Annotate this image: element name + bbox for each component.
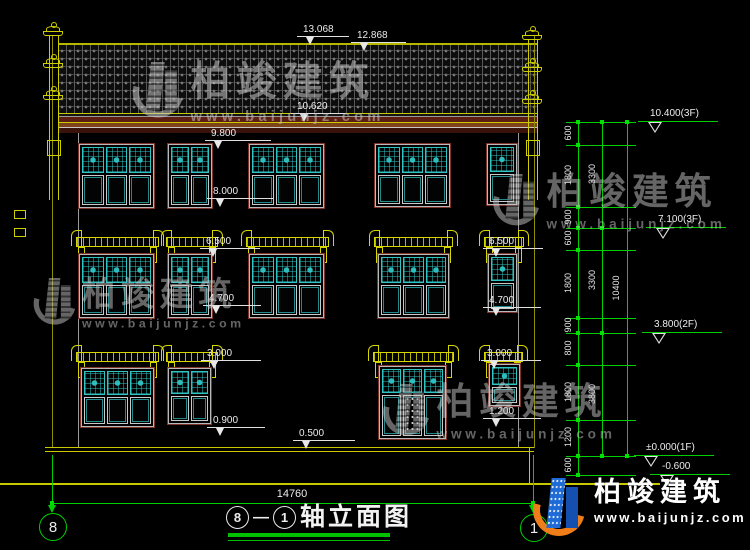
window-panes — [490, 174, 514, 202]
window-panes — [378, 175, 447, 204]
window-lattice — [171, 147, 209, 173]
elevation-symbol-icon — [656, 228, 670, 239]
lattice-window — [78, 143, 155, 209]
dim-chain-tick — [576, 120, 580, 124]
watermark-url: www.baijunjz.com — [437, 426, 616, 442]
dim-chain-tick — [625, 454, 629, 458]
title-axis-circle-left: 8 — [226, 506, 249, 529]
awning-end-right — [517, 345, 528, 361]
dim-chain-tick — [576, 248, 580, 252]
awning-bar — [374, 237, 453, 247]
dim-chain-tick — [600, 331, 604, 335]
window-pane — [381, 285, 401, 315]
lattice-cell — [171, 371, 189, 394]
window-pane — [82, 175, 104, 205]
lattice-cell — [130, 371, 151, 395]
dim-chain-line — [627, 122, 628, 456]
dim-chain-tick — [576, 418, 580, 422]
dim-chain-label: 3300 — [587, 154, 597, 194]
dim-chain-label: 1800 — [563, 155, 573, 195]
dimension-arrow-icon — [490, 361, 498, 369]
lattice-cell — [106, 147, 128, 173]
window-pane — [191, 396, 209, 421]
lattice-cell — [171, 147, 189, 173]
dim-chain-label: 3800 — [587, 374, 597, 414]
dimension-label: 0.500 — [299, 428, 324, 439]
watermark-building-icon — [61, 285, 71, 318]
wall-mark — [14, 228, 26, 237]
window-pane — [171, 285, 189, 315]
dim-chain-tick — [576, 143, 580, 147]
window-panes — [171, 175, 209, 205]
lattice-cell — [107, 371, 128, 395]
window-pane — [84, 397, 105, 424]
roof-eave-band — [58, 113, 537, 133]
dimension-label: 6.500 — [489, 236, 514, 247]
lattice-cell — [491, 257, 514, 281]
window-panes — [252, 285, 321, 315]
dimension-label: 10.620 — [297, 101, 328, 112]
window-lattice — [491, 257, 514, 281]
window-awning — [71, 345, 164, 369]
dim-chain-tick — [600, 226, 604, 230]
lattice-cell — [424, 369, 443, 393]
lattice-cell — [426, 257, 446, 283]
ground-line-upper — [45, 447, 534, 448]
lattice-cell — [425, 147, 447, 173]
brand-texts: 柏竣建筑 www.baijunjz.com — [594, 478, 746, 525]
dimension-annotation: 0.900 — [213, 415, 238, 426]
dimension-line — [297, 36, 349, 37]
window-lattice — [252, 257, 321, 283]
lattice-cell — [252, 257, 274, 283]
dimension-label: 9.800 — [211, 128, 236, 139]
dimension-arrow-icon — [214, 141, 222, 149]
dim-chain-label: 600 — [563, 113, 573, 153]
lattice-cell — [82, 257, 104, 283]
elevation-symbol-icon — [648, 122, 662, 133]
window-lattice — [82, 257, 151, 283]
dimension-annotation: 4.700 — [489, 295, 514, 306]
dimension-arrow-icon — [492, 249, 500, 257]
dim-chain-tick — [600, 120, 604, 124]
window-panes — [82, 285, 151, 315]
lattice-cell — [299, 147, 321, 173]
dimension-annotation: 3.000 — [207, 348, 232, 359]
awning-bar — [76, 352, 159, 362]
dimension-label: 4.700 — [209, 293, 234, 304]
window-pane — [191, 175, 209, 205]
elevation-marker-label: ±0.000(1F) — [646, 442, 695, 453]
window-panes — [84, 397, 151, 424]
elevation-symbol-icon — [644, 456, 658, 467]
awning-bar — [246, 237, 329, 247]
window-pane — [426, 285, 446, 315]
awning-end-left — [161, 230, 172, 246]
dimension-arrow-icon — [300, 114, 308, 122]
dimension-arrow-icon — [306, 37, 314, 45]
elevation-drawing-canvas: 13.06812.86810.6209.8008.0006.5006.5004.… — [0, 0, 750, 550]
axis-bubble-8: 8 — [39, 513, 67, 541]
lattice-cell — [276, 257, 298, 283]
watermark-logo-icon — [38, 278, 75, 326]
roof-finial-icon — [43, 22, 63, 36]
dimension-arrow-icon — [210, 361, 218, 369]
lattice-cell — [276, 147, 298, 173]
dim-chain-label: 800 — [563, 328, 573, 368]
dimension-label: 1.200 — [489, 406, 514, 417]
lattice-cell — [106, 257, 128, 283]
window-lattice — [490, 147, 514, 172]
window-pane — [129, 175, 151, 205]
dim-chain-label: 600 — [563, 218, 573, 258]
window-pane — [276, 285, 298, 315]
roof-finial-icon — [522, 58, 542, 72]
dimension-annotation: 10.620 — [297, 101, 328, 112]
lattice-window — [248, 143, 325, 209]
window-pane — [490, 174, 514, 202]
dimension-annotation: 0.500 — [299, 428, 324, 439]
lattice-cell — [299, 257, 321, 283]
window-pane — [403, 395, 422, 436]
dimension-annotation: 8.000 — [213, 186, 238, 197]
window-pane — [425, 175, 447, 204]
awning-end-right — [448, 345, 459, 361]
elevation-symbol-icon — [652, 333, 666, 344]
window-pane — [382, 395, 401, 436]
logo-building-icon — [566, 487, 578, 528]
window-pane — [299, 285, 321, 315]
awning-end-left — [241, 230, 252, 246]
dimension-label: 8.000 — [213, 186, 238, 197]
lattice-cell — [191, 147, 209, 173]
dimension-arrow-icon — [209, 249, 217, 257]
brand-logo: 柏竣建筑 www.baijunjz.com — [538, 478, 746, 536]
awning-bar — [76, 237, 159, 247]
finial-skirt — [43, 31, 63, 36]
lattice-cell — [381, 257, 401, 283]
dimension-annotation: 13.068 — [303, 24, 334, 35]
dimension-annotation: 6.500 — [489, 236, 514, 247]
dim-chain-tick — [576, 331, 580, 335]
awning-end-left — [71, 230, 82, 246]
window-pane — [424, 395, 443, 436]
window-panes — [82, 175, 151, 205]
ground-step — [529, 447, 530, 484]
lattice-cell — [129, 257, 151, 283]
dimension-arrow-icon — [216, 428, 224, 436]
window-pane — [378, 175, 400, 204]
window-lattice — [378, 147, 447, 173]
window-pane — [106, 175, 128, 205]
dimension-arrow-icon — [216, 199, 224, 207]
window-awning — [241, 230, 334, 254]
window-lattice — [252, 147, 321, 173]
dimension-arrow-icon — [492, 419, 500, 427]
roof-finial-icon — [522, 90, 542, 104]
pole-bracket — [47, 140, 61, 156]
lattice-window — [167, 143, 213, 209]
brand-url: www.baijunjz.com — [594, 510, 746, 525]
awning-end-left — [368, 345, 379, 361]
dim-chain-label: 3300 — [587, 260, 597, 300]
drawing-title: 8 — 1 轴立面图 — [226, 505, 412, 530]
window-pane — [129, 285, 151, 315]
dimension-annotation: 3.000 — [487, 348, 512, 359]
elevation-marker-label: -0.600 — [662, 461, 690, 472]
window-panes — [171, 396, 208, 421]
window-pane — [82, 285, 104, 315]
lattice-window — [248, 253, 325, 319]
window-lattice — [492, 367, 517, 385]
dimension-label: 0.900 — [213, 415, 238, 426]
dimension-label: 3.000 — [487, 348, 512, 359]
lattice-cell — [84, 371, 105, 395]
dimension-label: 4.700 — [489, 295, 514, 306]
finial-skirt — [522, 35, 542, 40]
dim-chain-label: 10400 — [611, 268, 621, 308]
title-dash: — — [253, 509, 269, 527]
elevation-marker: 3.800(2F) — [654, 319, 697, 330]
lattice-cell — [403, 369, 422, 393]
window-awning — [369, 230, 458, 254]
lattice-cell — [403, 257, 423, 283]
overall-dim-line — [52, 503, 533, 504]
roof-finial-icon — [43, 54, 63, 68]
window-pane — [106, 285, 128, 315]
elevation-marker: 10.400(3F) — [650, 108, 699, 119]
dim-chain-tick — [576, 363, 580, 367]
finial-skirt — [43, 95, 63, 100]
lattice-cell — [382, 369, 401, 393]
dimension-label: 3.000 — [207, 348, 232, 359]
elevation-marker-label: 7.100(3F) — [658, 214, 701, 225]
lattice-cell — [402, 147, 424, 173]
window-panes — [171, 285, 209, 315]
elevation-marker: 7.100(3F) — [658, 214, 701, 225]
window-panes — [492, 387, 517, 403]
window-pane — [107, 397, 128, 424]
lattice-cell — [252, 147, 274, 173]
awning-end-right — [518, 230, 529, 246]
window-pane — [171, 175, 189, 205]
dim-chain-tick — [576, 454, 580, 458]
entry-door — [378, 365, 447, 440]
window-pane — [191, 285, 209, 315]
dim-chain-line — [602, 122, 603, 456]
lattice-cell — [191, 257, 209, 283]
finial-skirt — [522, 99, 542, 104]
lattice-window — [374, 143, 451, 208]
axis-line-right — [533, 455, 534, 505]
lattice-cell — [492, 367, 517, 385]
window-pane — [299, 175, 321, 205]
window-panes — [381, 285, 446, 315]
dim-chain-tick — [625, 120, 629, 124]
title-text: 轴立面图 — [300, 505, 412, 530]
lattice-window — [167, 253, 213, 319]
dim-chain-tick — [576, 226, 580, 230]
watermark-swoosh-icon — [26, 275, 84, 333]
window-pane — [492, 387, 517, 403]
dimension-label: 6.500 — [206, 236, 231, 247]
lattice-cell — [490, 147, 514, 172]
lattice-window — [488, 363, 521, 407]
ground-line-upper-2 — [45, 451, 534, 452]
dimension-arrow-icon — [302, 441, 310, 449]
lattice-cell — [129, 147, 151, 173]
awning-end-left — [71, 345, 82, 361]
title-underline-thin — [228, 540, 390, 541]
brand-name: 柏竣建筑 — [594, 478, 746, 508]
finial-skirt — [43, 63, 63, 68]
window-lattice — [382, 369, 443, 393]
window-awning — [71, 230, 164, 254]
awning-end-right — [323, 230, 334, 246]
roof-finial-icon — [522, 26, 542, 40]
window-lattice — [171, 371, 208, 394]
dim-chain-tick — [576, 316, 580, 320]
window-lattice — [82, 147, 151, 173]
elevation-marker-label: 3.800(2F) — [654, 319, 697, 330]
roof-finial-icon — [43, 86, 63, 100]
awning-end-left — [161, 345, 172, 361]
lattice-cell — [191, 371, 209, 394]
dimension-annotation: 6.500 — [206, 236, 231, 247]
window-pane — [171, 396, 189, 421]
lattice-window — [167, 367, 212, 425]
elevation-marker: ±0.000(1F) — [646, 442, 695, 453]
lattice-cell — [378, 147, 400, 173]
window-pane — [402, 175, 424, 204]
dimension-arrow-icon — [492, 308, 500, 316]
window-lattice — [84, 371, 151, 395]
window-pane — [403, 285, 423, 315]
lattice-window — [486, 143, 518, 206]
lattice-window — [80, 367, 155, 428]
pole-bracket — [526, 140, 540, 156]
lattice-cell — [171, 257, 189, 283]
dimension-label: 12.868 — [357, 30, 388, 41]
awning-bar — [373, 352, 454, 362]
dimension-annotation: 12.868 — [357, 30, 388, 41]
elevation-marker-label: 10.400(3F) — [650, 108, 699, 119]
dimension-arrow-icon — [360, 43, 368, 51]
lattice-window — [78, 253, 155, 319]
lattice-window — [377, 253, 450, 319]
dim-chain-tick — [600, 454, 604, 458]
window-panes — [382, 395, 443, 436]
lattice-cell — [82, 147, 104, 173]
awning-end-left — [369, 230, 380, 246]
window-pane — [130, 397, 151, 424]
brand-logo-icon — [538, 478, 584, 536]
dim-chain-line — [578, 122, 579, 475]
window-lattice — [171, 257, 209, 283]
dimension-annotation: 4.700 — [209, 293, 234, 304]
axis-line-left — [52, 455, 53, 505]
dim-chain-label: 1800 — [563, 263, 573, 303]
dim-chain-tick — [576, 205, 580, 209]
wall-mark — [14, 210, 26, 219]
finial-skirt — [522, 67, 542, 72]
dim-chain-tick — [576, 473, 580, 477]
window-pane — [276, 175, 298, 205]
axis-arrow-left-icon — [48, 505, 56, 513]
dimension-arrow-icon — [212, 306, 220, 314]
elevation-marker: -0.600 — [662, 461, 690, 472]
dimension-annotation: 9.800 — [211, 128, 236, 139]
dimension-annotation: 1.200 — [489, 406, 514, 417]
title-underline-thick — [228, 533, 390, 537]
overall-dimension: 14760 — [262, 488, 322, 500]
title-axis-circle-right: 1 — [273, 506, 296, 529]
window-pane — [252, 285, 274, 315]
dimension-label: 13.068 — [303, 24, 334, 35]
window-lattice — [381, 257, 446, 283]
dim-chain-label: 1800 — [563, 372, 573, 412]
window-panes — [252, 175, 321, 205]
awning-end-right — [447, 230, 458, 246]
window-pane — [252, 175, 274, 205]
